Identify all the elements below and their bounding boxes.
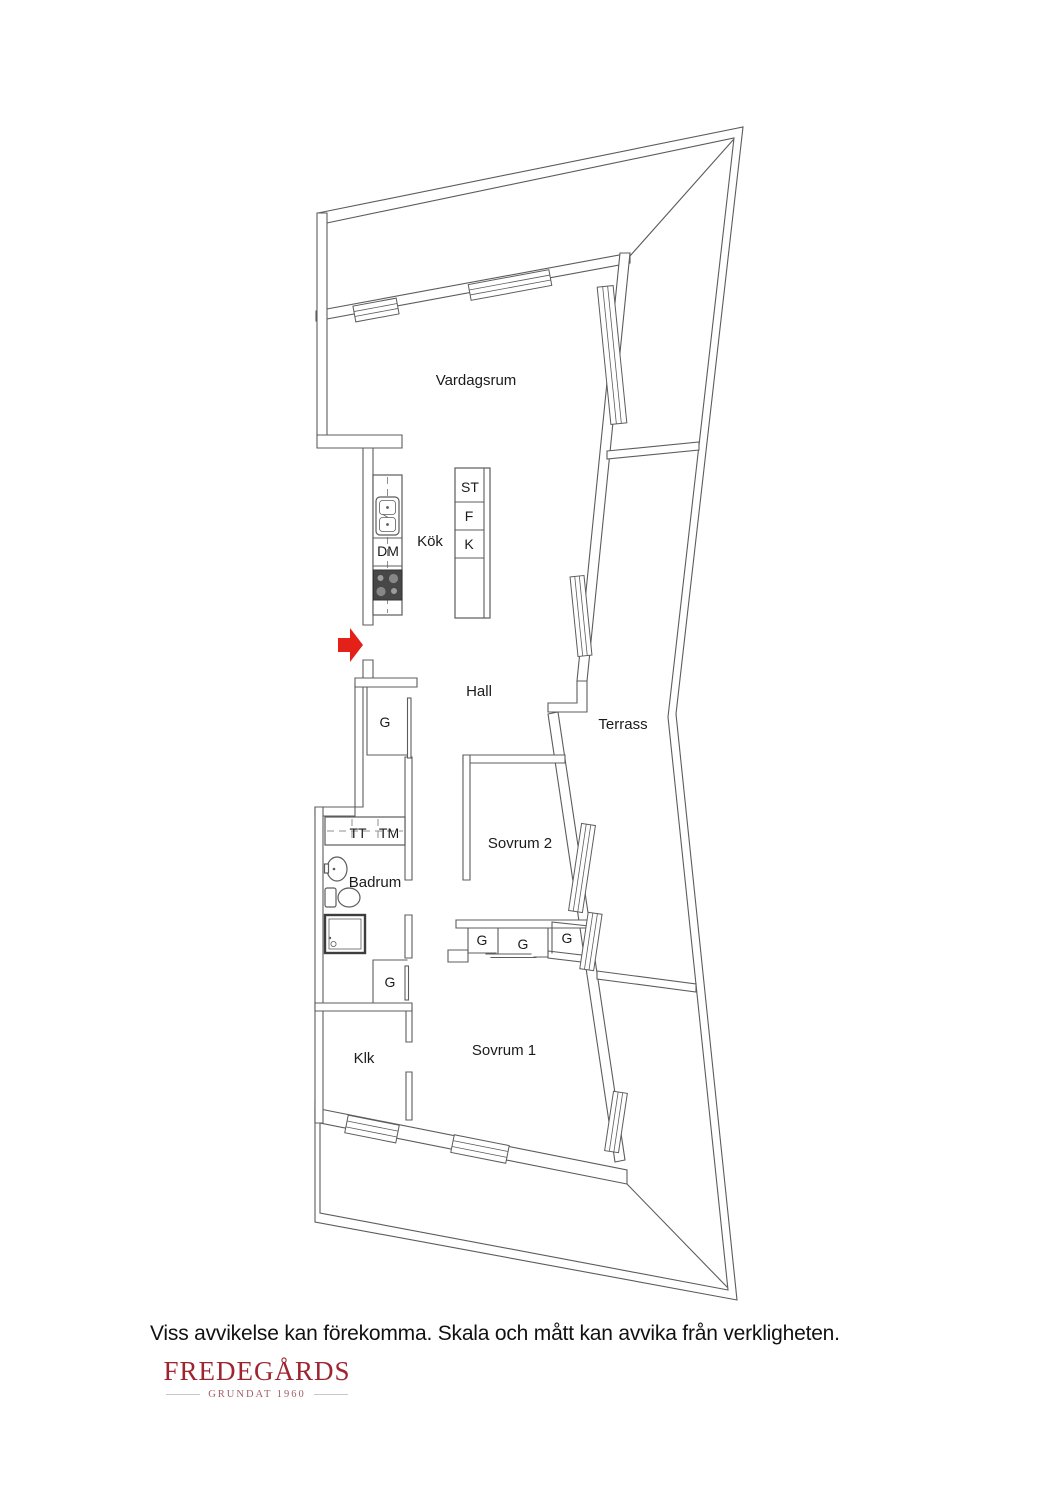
- shower-icon: [325, 915, 365, 953]
- room-label-kitchen: Kök: [417, 533, 443, 550]
- floorplan-page: Vardagsrum Kök Hall Terrass Sovrum 2 Sov…: [0, 0, 1060, 1500]
- room-label-bathroom: Badrum: [349, 874, 402, 891]
- floor-plan-svg: Vardagsrum Kök Hall Terrass Sovrum 2 Sov…: [0, 0, 1060, 1500]
- sink-icon: [325, 857, 348, 881]
- dryer-label: TT: [349, 825, 367, 841]
- cleaning-cabinet-label: ST: [461, 479, 479, 495]
- apartment-walls: [315, 213, 699, 1184]
- window: [451, 1135, 509, 1164]
- wardrobe-door: [405, 966, 409, 1000]
- freezer-label: K: [464, 536, 474, 552]
- wardrobe-label: G: [477, 932, 488, 948]
- dishwasher-label: DM: [377, 543, 399, 559]
- sink-icon: [376, 497, 399, 535]
- wardrobe-label: G: [562, 930, 573, 946]
- wardrobe-label: G: [385, 974, 396, 990]
- room-label-living-room: Vardagsrum: [436, 372, 517, 389]
- logo-rule-left: [166, 1394, 200, 1395]
- room-label-terrace: Terrass: [598, 716, 647, 733]
- roof-diagonal-bottom: [627, 1184, 727, 1287]
- wardrobe-label: G: [380, 714, 391, 730]
- brand-tagline: GRUNDAT 1960: [208, 1389, 306, 1400]
- room-label-bedroom2: Sovrum 2: [488, 835, 552, 852]
- entrance-arrow-icon: [338, 628, 363, 662]
- washer-label: TM: [379, 825, 399, 841]
- brand-logo: FREDEGÅRDS GRUNDAT 1960: [152, 1356, 362, 1400]
- wardrobe-label: G: [518, 936, 529, 952]
- window: [353, 298, 399, 322]
- stove-icon: [374, 570, 403, 600]
- disclaimer-text: Viss avvikelse kan förekomma. Skala och …: [150, 1322, 1010, 1346]
- sliding-door: [486, 954, 536, 958]
- logo-rule-right: [314, 1394, 348, 1395]
- window: [468, 270, 552, 301]
- fridge-label: F: [465, 508, 474, 524]
- roof-diagonal-top: [630, 140, 733, 256]
- room-label-walk-in-closet: Klk: [354, 1050, 375, 1067]
- room-label-hall: Hall: [466, 683, 492, 700]
- brand-name: FREDEGÅRDS: [152, 1356, 362, 1387]
- wardrobe-door: [408, 698, 412, 758]
- room-label-bedroom1: Sovrum 1: [472, 1042, 536, 1059]
